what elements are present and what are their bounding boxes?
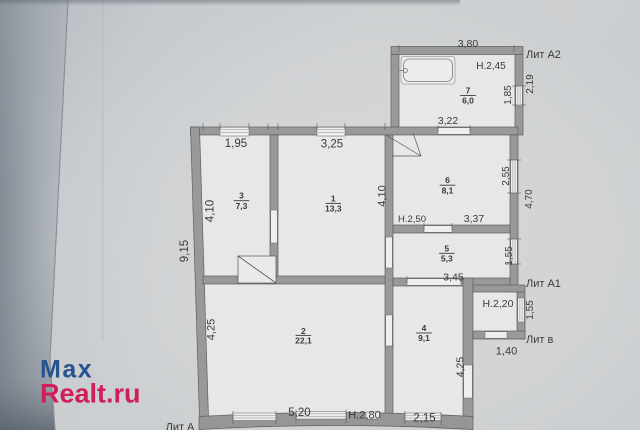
svg-text:5,3: 5,3 [441,254,453,264]
svg-text:1,40: 1,40 [496,346,517,358]
svg-text:4,10: 4,10 [205,200,217,222]
svg-text:4,10: 4,10 [377,185,389,206]
svg-text:Лит А: Лит А [166,422,195,430]
svg-text:4: 4 [422,323,427,333]
svg-text:3,22: 3,22 [438,115,459,127]
svg-text:5,20: 5,20 [288,407,310,419]
svg-text:3: 3 [239,191,244,201]
svg-text:Лит в: Лит в [526,334,553,346]
svg-text:13,3: 13,3 [325,203,342,213]
svg-text:1,55: 1,55 [525,300,536,320]
svg-text:6: 6 [445,175,450,185]
svg-text:9,1: 9,1 [418,333,430,343]
svg-text:4,70: 4,70 [524,189,535,209]
svg-text:Н.2,45: Н.2,45 [476,61,506,72]
svg-text:9,15: 9,15 [179,240,191,262]
svg-text:1,95: 1,95 [225,138,247,150]
svg-text:7: 7 [466,85,471,95]
svg-text:Н.2,50: Н.2,50 [398,214,426,225]
svg-text:8,1: 8,1 [442,186,454,196]
svg-text:Realt.ru: Realt.ru [40,379,141,409]
svg-text:1,55: 1,55 [504,246,515,266]
svg-text:2,15: 2,15 [413,413,435,425]
svg-text:22,1: 22,1 [295,335,312,345]
svg-text:Н.2,80: Н.2,80 [348,410,380,422]
svg-text:3,80: 3,80 [458,38,479,50]
svg-text:4,25: 4,25 [455,357,467,378]
svg-text:5: 5 [444,243,449,253]
svg-text:3,45: 3,45 [443,272,464,284]
svg-text:7,3: 7,3 [236,201,248,211]
svg-text:Лит А1: Лит А1 [526,278,561,290]
svg-text:6,0: 6,0 [462,96,474,106]
svg-text:2,19: 2,19 [525,74,536,94]
svg-text:1,85: 1,85 [503,85,514,105]
svg-text:3,37: 3,37 [464,213,485,225]
svg-text:Н.2,20: Н.2,20 [483,298,514,310]
svg-text:3,25: 3,25 [321,139,343,151]
svg-text:2,55: 2,55 [501,166,512,186]
svg-text:1: 1 [331,193,336,203]
svg-text:Лит А2: Лит А2 [526,49,561,61]
svg-text:4,25: 4,25 [206,319,218,340]
svg-text:2: 2 [301,326,306,336]
